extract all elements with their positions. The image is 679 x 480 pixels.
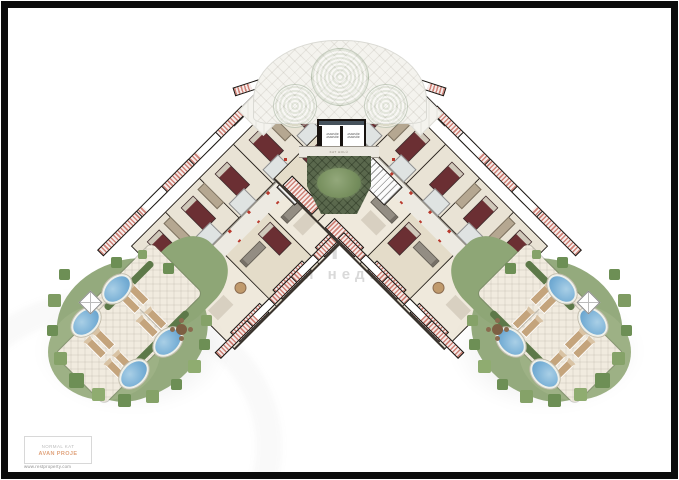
central-core: ASANSÖR ASANSÖR ASANSÖR ASANSÖR KAT HOLÜ: [0, 0, 679, 480]
elevator-label: ASANSÖR: [347, 136, 359, 139]
stamp-box: NORMAL KAT AVAN PROJE: [24, 436, 92, 464]
stamp-url: www.restproperty.com: [24, 464, 71, 469]
elevator-wall: [319, 121, 364, 125]
plaza-tree: [311, 48, 369, 106]
elevator-block: ASANSÖR ASANSÖR ASANSÖR ASANSÖR: [317, 119, 366, 148]
floor-plan-sheet: RestProperty зарубежная недвижимость BAL…: [0, 0, 679, 480]
plaza-tree: [364, 84, 408, 128]
courtyard-tree: [317, 168, 361, 198]
elevator-shaft: ASANSÖR ASANSÖR: [340, 126, 364, 146]
stamp-line2: AVAN PROJE: [39, 451, 78, 457]
hall-label: KAT HOLÜ: [330, 150, 349, 154]
stamp-line1: NORMAL KAT: [42, 444, 75, 449]
plaza-tree: [273, 84, 317, 128]
elevator-label: ASANSÖR: [326, 136, 338, 139]
